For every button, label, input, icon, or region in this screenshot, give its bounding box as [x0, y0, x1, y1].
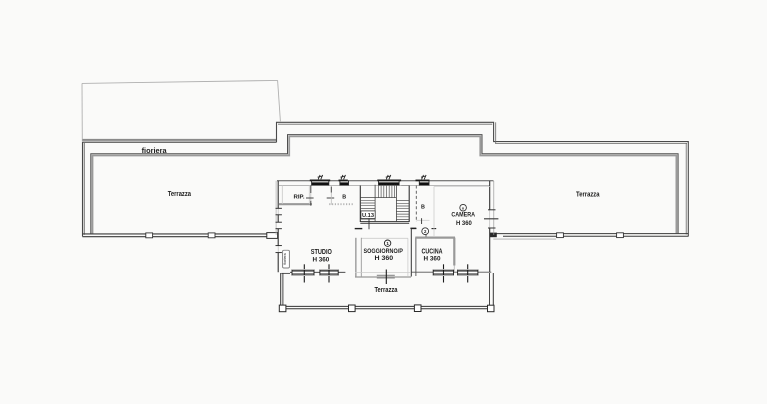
svg-text:Terrazza: Terrazza [168, 191, 191, 198]
svg-text:CAMERA: CAMERA [451, 211, 475, 218]
svg-text:RIP.: RIP. [294, 195, 305, 201]
svg-text:1: 1 [386, 241, 389, 246]
svg-text:fioriera: fioriera [283, 252, 287, 264]
svg-text:H 360: H 360 [456, 220, 472, 227]
svg-text:H 360: H 360 [375, 255, 394, 262]
svg-text:STUDIO: STUDIO [311, 249, 333, 256]
svg-text:H 360: H 360 [312, 256, 329, 263]
svg-text:H 360: H 360 [424, 255, 441, 262]
svg-text:B: B [421, 204, 425, 210]
svg-text:Terrazza: Terrazza [576, 191, 600, 198]
svg-text:U.13: U.13 [362, 213, 375, 219]
svg-text:B: B [342, 194, 346, 200]
svg-text:Terrazza: Terrazza [374, 287, 397, 294]
